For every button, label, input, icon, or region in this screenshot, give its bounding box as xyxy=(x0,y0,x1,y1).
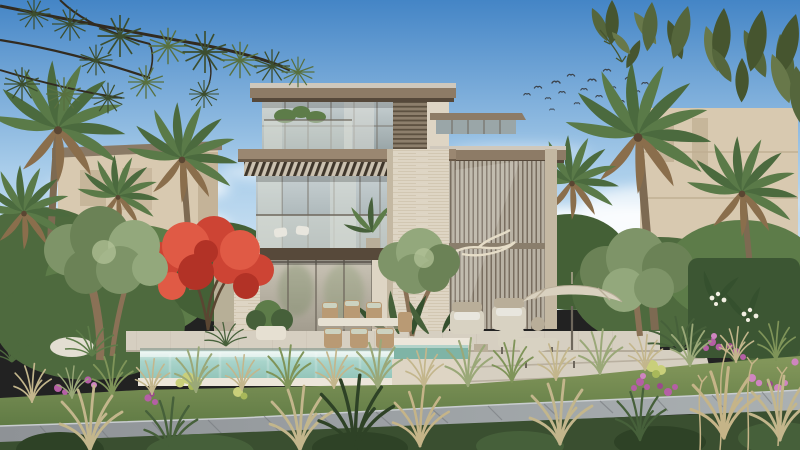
dining-table xyxy=(318,318,404,326)
villa-roof xyxy=(250,83,456,102)
render-canvas xyxy=(0,0,800,450)
villa-exterior-render xyxy=(0,0,800,450)
villa-middle-floor xyxy=(244,162,395,250)
glass-balustrade xyxy=(264,120,352,149)
